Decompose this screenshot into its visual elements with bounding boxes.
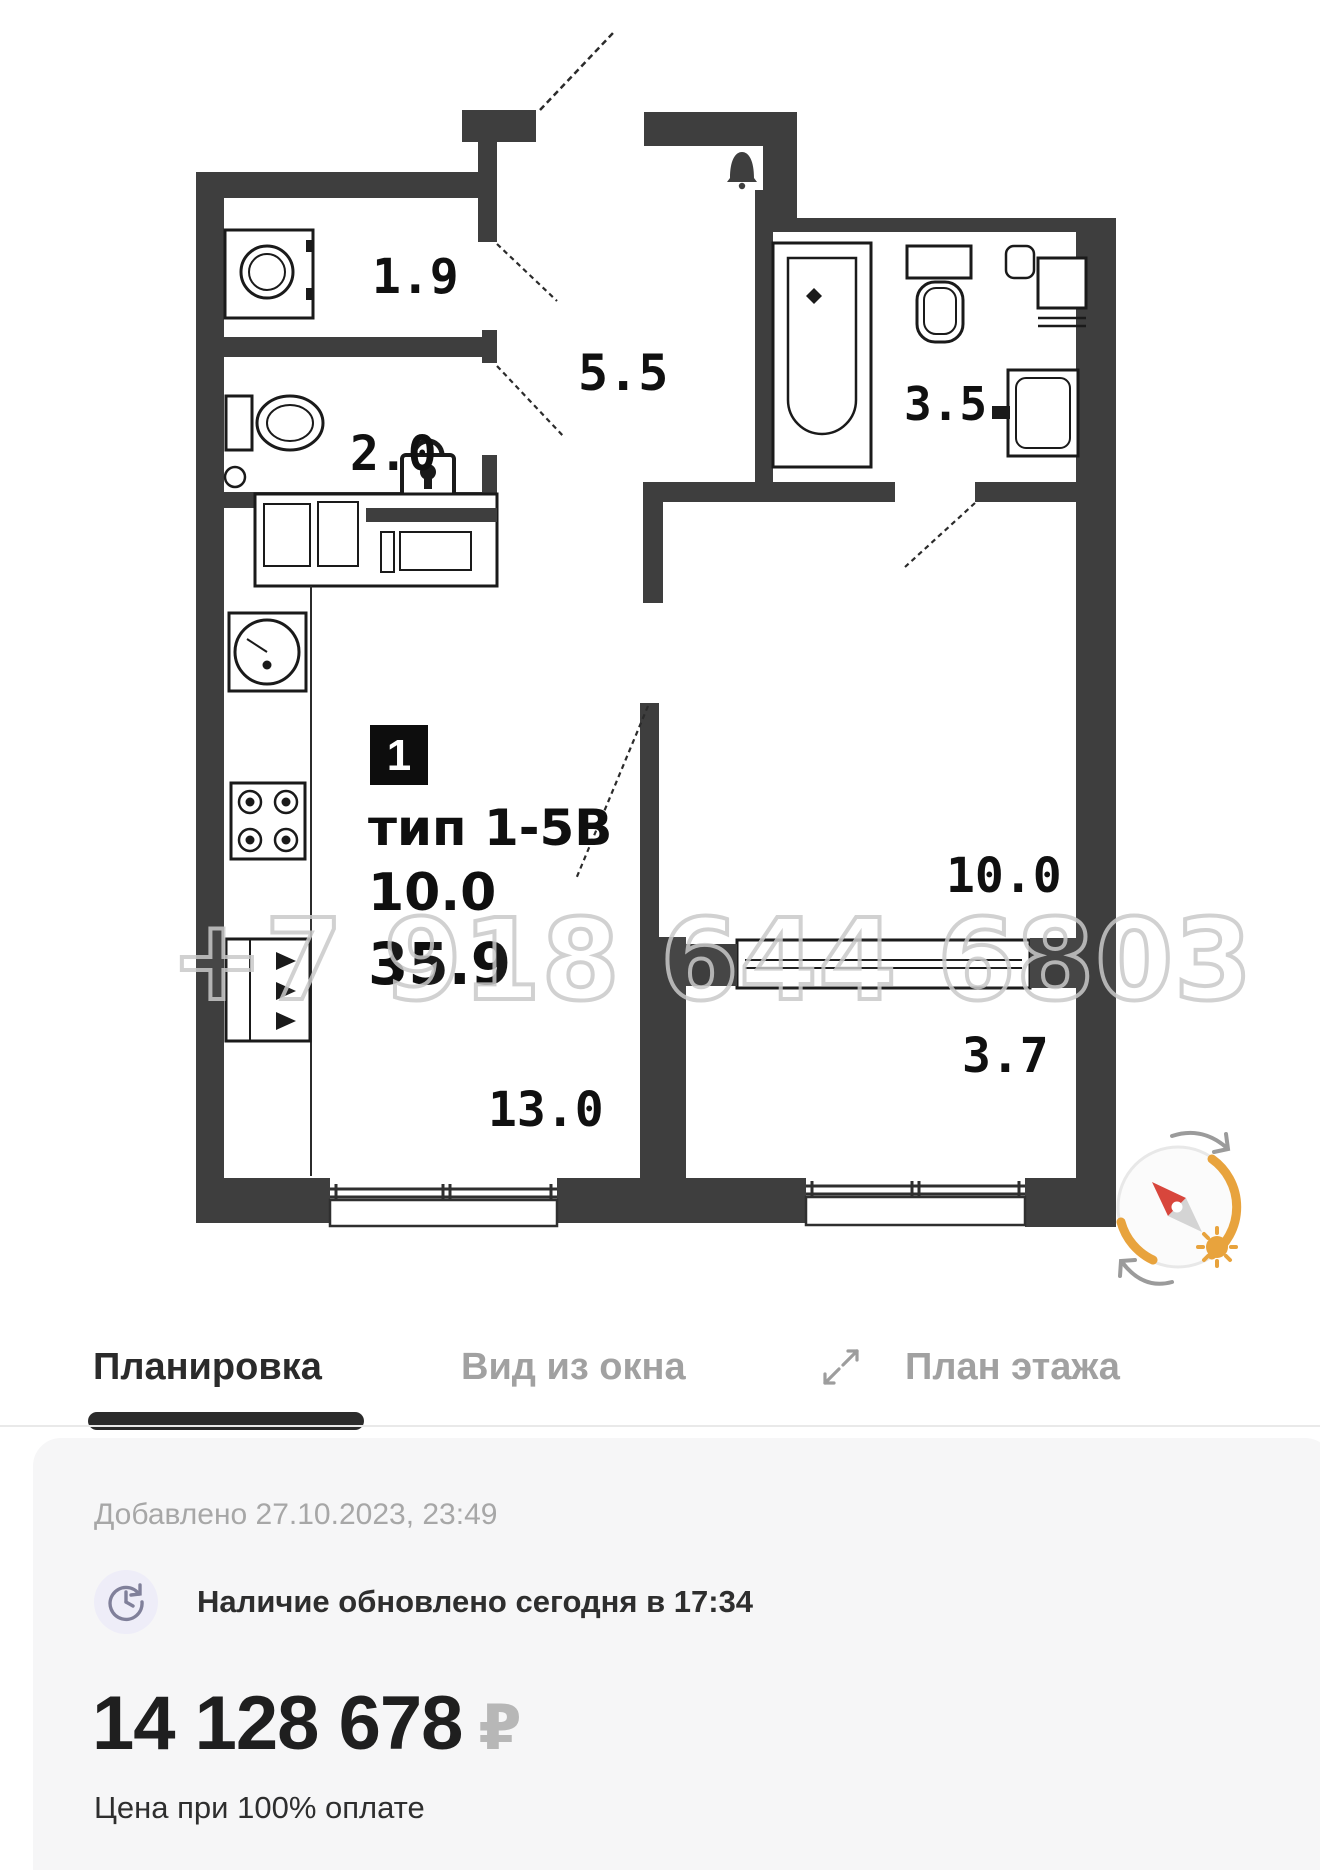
room-area-bathroom: 3.5 [904,377,987,431]
listing-info-card: Добавлено 27.10.2023, 23:49 Наличие обно… [33,1438,1320,1870]
floor-plan-drawing: 1.9 2.0 5.5 3.5 13.0 10.0 3.7 1 тип 1-5В… [0,0,1320,1300]
tab-planirovka[interactable]: Планировка [93,1346,322,1389]
washing-machine-icon [225,230,313,318]
bathroom-toilet-icon [907,246,971,342]
room-area-kitchen-living: 13.0 [488,1082,604,1138]
tab-bar: Планировка Вид из окна План этажа [0,1338,1320,1438]
stove-icon [231,783,305,859]
unit-badge-number: 1 [387,731,411,780]
room-area-storage: 1.9 [372,249,459,305]
window-right [806,1181,1025,1225]
washbasin-icon [992,370,1078,456]
added-date: Добавлено 27.10.2023, 23:49 [94,1498,497,1532]
bathtub-icon [773,243,871,467]
shelf-icon [1006,246,1034,278]
sprinkler-icon [225,467,245,487]
availability-text: Наличие обновлено сегодня в 17:34 [197,1584,753,1620]
window-left [330,1184,557,1226]
toilet-icon [226,396,323,450]
doorbell-icon [721,146,763,190]
compass-pivot [1172,1202,1183,1213]
compass-widget[interactable] [1118,1133,1238,1284]
expand-icon[interactable] [818,1342,864,1390]
sun-icon [1198,1228,1236,1266]
price-note: Цена при 100% оплате [94,1790,425,1826]
door-swings [497,244,975,879]
price-value: 14 128 678 [92,1681,462,1766]
tab-plan-etazha[interactable]: План этажа [905,1346,1120,1389]
entrance-door-swing [540,33,613,110]
floor-plan: 1.9 2.0 5.5 3.5 13.0 10.0 3.7 1 тип 1-5В… [0,0,1320,1300]
price-row: 14 128 678₽ [92,1680,522,1767]
room-area-wc: 2.0 [350,426,437,482]
unit-type-label: тип 1-5В [368,799,612,857]
ruble-sign: ₽ [478,1691,521,1764]
section-divider [0,1425,1320,1427]
kitchen-counter [255,494,497,586]
room-area-hall: 5.5 [578,344,668,402]
listing-page: { "floor_plan": { "watermark": "+7 918 6… [0,0,1320,1870]
tab-vid-iz-okna[interactable]: Вид из окна [461,1346,686,1389]
room-area-loggia: 3.7 [962,1028,1049,1084]
active-tab-underline [88,1412,364,1430]
fridge-icon [229,613,306,691]
availability-updated-icon [94,1570,158,1634]
phone-watermark: +7 918 644 6803 [170,896,1253,1026]
